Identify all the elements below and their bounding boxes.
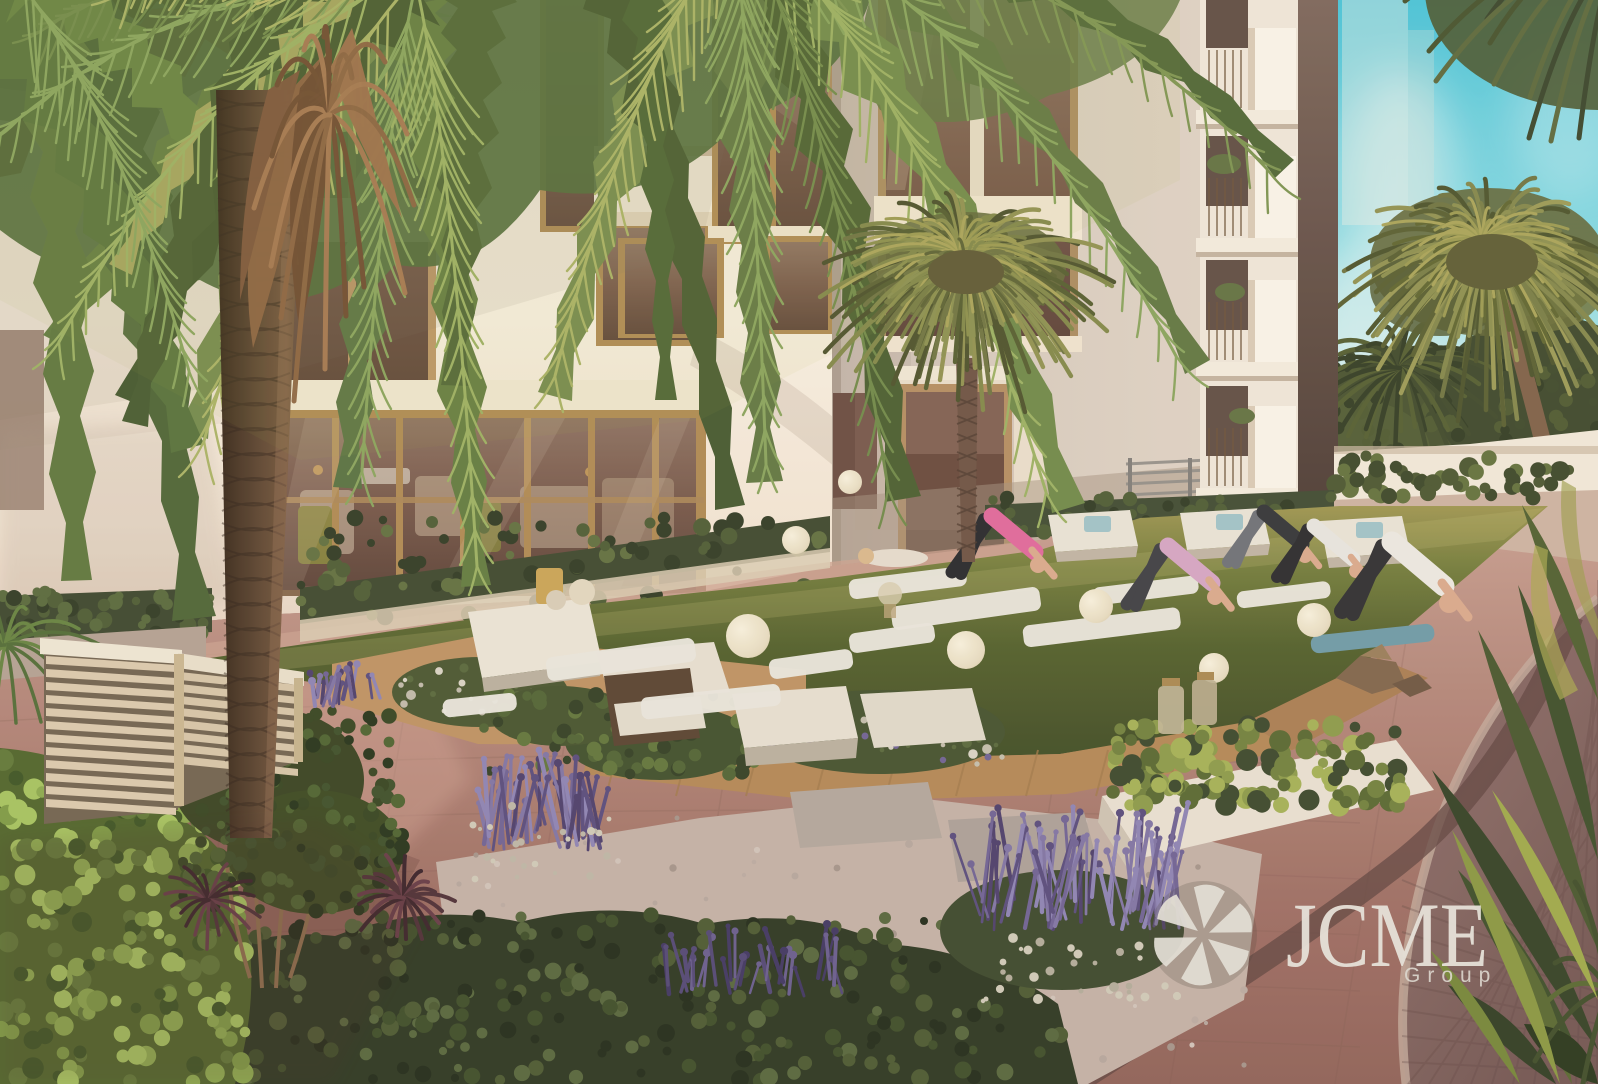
svg-text:Group: Group xyxy=(1404,964,1497,987)
